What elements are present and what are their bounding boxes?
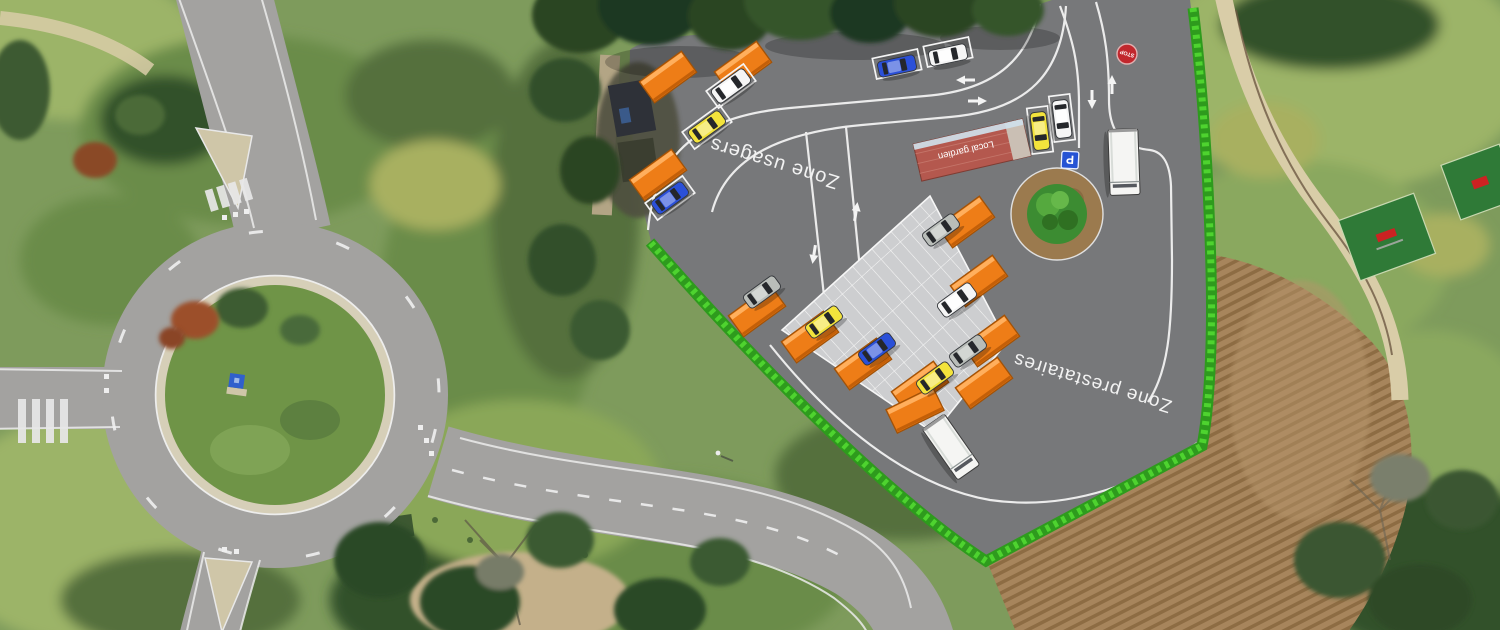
red-tree <box>73 142 117 178</box>
roundabout-island <box>156 276 394 514</box>
landscape-tree <box>1011 168 1103 260</box>
parking-sign-label: P <box>1066 152 1075 166</box>
aerial-site-plan: Local gardien <box>0 0 1500 630</box>
parking-sign: P <box>1061 151 1079 169</box>
aerial-site-plan-canvas: Local gardien <box>0 0 1500 630</box>
stop-sign: STOP <box>1117 44 1137 64</box>
vehicle-truck <box>1102 128 1140 197</box>
